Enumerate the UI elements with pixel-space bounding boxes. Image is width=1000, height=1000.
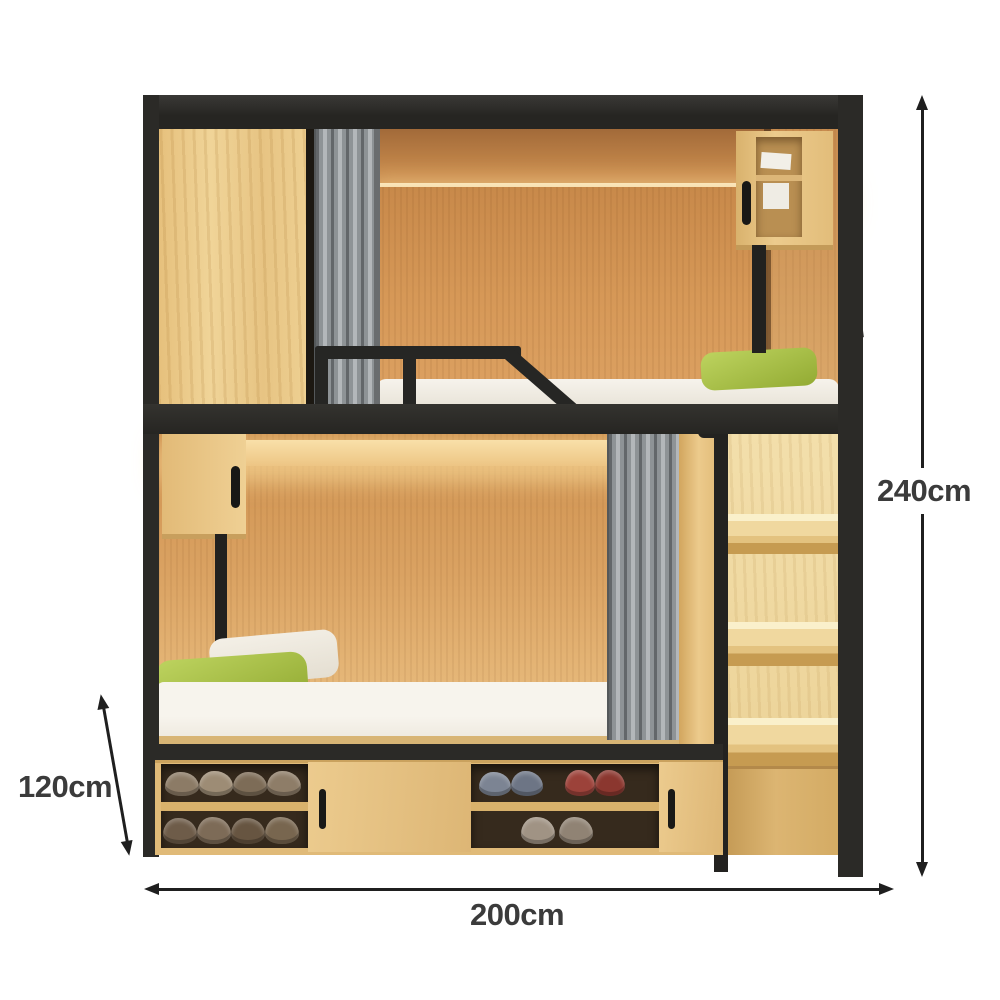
- shoe: [163, 818, 197, 844]
- shoe: [267, 771, 301, 796]
- guardrail-post: [403, 346, 416, 408]
- cubby-shelf-board: [756, 175, 802, 181]
- shoe: [197, 817, 231, 844]
- upper-curtain-rail-post: [374, 129, 380, 411]
- door-handle: [668, 789, 675, 829]
- shoe: [199, 771, 233, 796]
- upper-cubby-support: [752, 245, 766, 353]
- shoe-bay-left: [161, 764, 308, 848]
- frame-middle-beam: [143, 404, 863, 434]
- shoe-bay-right: [471, 764, 659, 848]
- shoe-shelf-board: [471, 802, 659, 811]
- cubby-item: [760, 152, 791, 170]
- sliding-door-left: [308, 762, 471, 852]
- shoe: [559, 817, 593, 844]
- cubby-item: [763, 183, 789, 209]
- sliding-door-right: [659, 762, 723, 852]
- arrow-right-icon: [879, 883, 894, 895]
- depth-dimension-label: 120cm: [18, 770, 112, 804]
- width-dimension-label: 200cm: [455, 898, 579, 932]
- shoe: [565, 770, 595, 796]
- width-dimension-arrow: [144, 881, 894, 897]
- shoe: [595, 770, 625, 796]
- shoe: [165, 772, 199, 796]
- arrow-down-icon: [121, 840, 135, 857]
- upper-cubby-open-shelf: [756, 137, 802, 237]
- lower-cubby-handle: [231, 466, 240, 508]
- shoe: [265, 817, 299, 844]
- shoe: [479, 772, 511, 796]
- shoe: [511, 771, 543, 796]
- frame-right-post: [838, 95, 863, 877]
- shoe: [233, 772, 267, 796]
- arrow-down-icon: [916, 862, 928, 877]
- upper-cubby-handle: [742, 181, 751, 225]
- shoe: [231, 818, 265, 844]
- lower-mattress: [156, 682, 664, 744]
- lower-wall-cubby: [162, 434, 246, 539]
- door-handle: [319, 789, 326, 829]
- frame-left-post: [143, 95, 159, 857]
- stair-shelf-step: [725, 622, 856, 666]
- upper-green-pillow: [700, 347, 818, 391]
- under-stair-cabinet: [725, 766, 852, 855]
- guardrail-post: [315, 346, 328, 408]
- lower-privacy-curtain: [607, 428, 681, 740]
- guardrail-top-bar: [315, 346, 521, 359]
- product-dimension-diagram: 240cm 120cm 200cm: [0, 0, 1000, 1000]
- upper-wall-cubby: [736, 131, 833, 250]
- shoe: [521, 817, 555, 844]
- frame-top-beam: [143, 95, 863, 129]
- stair-shelf-step: [725, 514, 856, 554]
- top-wardrobe-door: [158, 129, 308, 406]
- shoe-shelf-board: [161, 802, 308, 811]
- height-dimension-label: 240cm: [872, 468, 976, 514]
- stair-shelf-step: [725, 718, 856, 766]
- dimension-line: [155, 888, 883, 891]
